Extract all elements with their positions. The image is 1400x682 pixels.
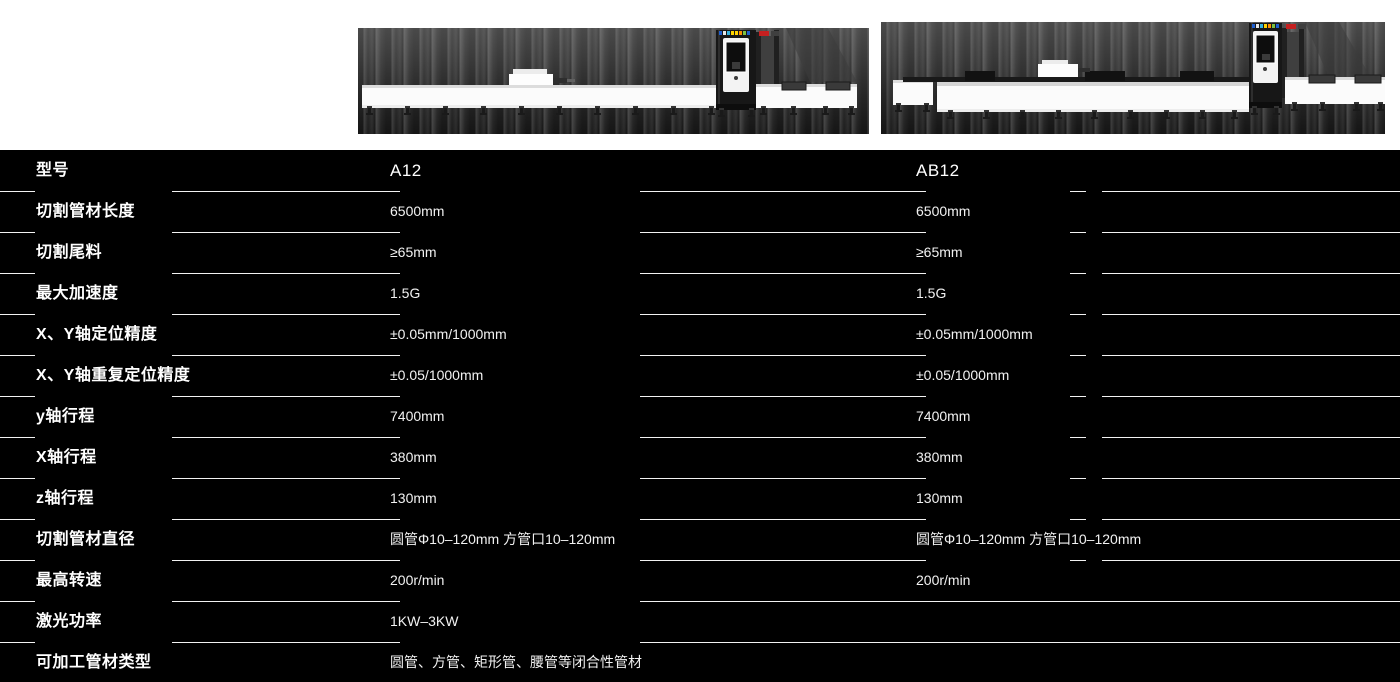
row-divider: [1102, 232, 1400, 233]
row-divider: [0, 232, 35, 233]
spec-row-label: 最大加速度: [36, 273, 119, 314]
chuck-carriage: [1038, 60, 1090, 77]
spec-row-label: 切割尾料: [36, 232, 102, 273]
row-divider: [172, 642, 400, 643]
row-divider: [1070, 314, 1086, 315]
spec-value-ab12: 7400mm: [916, 396, 970, 437]
row-divider: [1102, 273, 1400, 274]
spec-value-a12: 200r/min: [390, 560, 444, 601]
machine-bed: [937, 82, 1249, 112]
unloading-bed: [1285, 75, 1385, 104]
row-divider: [172, 314, 400, 315]
row-divider: [0, 642, 35, 643]
row-divider: [172, 560, 400, 561]
row-divider: [1102, 314, 1400, 315]
brand-logo-icon: [759, 31, 769, 36]
control-button-icon: [1263, 67, 1267, 71]
row-divider: [640, 437, 926, 438]
spec-value-ab12: 380mm: [916, 437, 963, 478]
row-divider: [0, 396, 35, 397]
row-divider: [0, 314, 35, 315]
spec-value-a12: 380mm: [390, 437, 437, 478]
machine-illustration-a12: [358, 28, 869, 134]
spec-row-label: 切割管材直径: [36, 519, 135, 560]
photo-background-shape: [1305, 22, 1371, 78]
spec-table: 型号A12AB12切割管材长度6500mm6500mm切割尾料≥65mm≥65m…: [0, 150, 1400, 682]
spec-value-a12: 7400mm: [390, 396, 444, 437]
column-header-a12: A12: [390, 150, 422, 191]
photo-background-shape: [786, 28, 857, 82]
row-divider: [1070, 560, 1086, 561]
row-divider: [172, 273, 400, 274]
row-divider: [640, 560, 926, 561]
spec-value-ab12: 6500mm: [916, 191, 970, 232]
spec-value-ab12: 1.5G: [916, 273, 946, 314]
spec-row-label: 激光功率: [36, 601, 102, 642]
spec-table-row: y轴行程7400mm7400mm: [0, 396, 1400, 437]
row-divider: [172, 601, 400, 602]
spec-value-a12: ≥65mm: [390, 232, 437, 273]
control-cabinet: [716, 30, 756, 110]
spec-value-a12: 130mm: [390, 478, 437, 519]
row-divider: [1102, 560, 1400, 561]
feeding-pedestal: [893, 80, 933, 105]
row-divider: [172, 478, 400, 479]
color-strip-icon: [1252, 24, 1279, 28]
row-divider: [640, 519, 926, 520]
row-divider: [1102, 519, 1400, 520]
spec-row-label: 可加工管材类型: [36, 642, 152, 682]
row-divider: [172, 437, 400, 438]
row-divider: [0, 519, 35, 520]
spec-value-ab12: 130mm: [916, 478, 963, 519]
row-divider: [1070, 273, 1086, 274]
column-header-ab12: AB12: [916, 150, 960, 191]
row-divider: [640, 232, 926, 233]
machine-illustration-ab12: [881, 22, 1385, 134]
spec-table-row: X、Y轴重复定位精度±0.05/1000mm±0.05/1000mm: [0, 355, 1400, 396]
row-divider: [1102, 355, 1400, 356]
spec-value-a12: ±0.05mm/1000mm: [390, 314, 507, 355]
row-divider: [1070, 396, 1086, 397]
row-divider: [640, 396, 926, 397]
row-divider: [640, 642, 1400, 643]
spec-table-row: 切割管材直径圆管Φ10–120mm 方管口10–120mm圆管Φ10–120mm…: [0, 519, 1400, 560]
product-image-ab12: [881, 22, 1385, 134]
spec-table-row: 可加工管材类型圆管、方管、矩形管、腰管等闭合性管材: [0, 642, 1400, 682]
spec-row-label: X轴行程: [36, 437, 97, 478]
row-divider: [640, 191, 926, 192]
row-divider: [0, 560, 35, 561]
spec-row-label: X、Y轴重复定位精度: [36, 355, 190, 396]
row-divider: [1102, 478, 1400, 479]
row-divider: [0, 478, 35, 479]
spec-header-label: 型号: [36, 150, 69, 191]
spec-table-row: 激光功率1KW–3KW: [0, 601, 1400, 642]
spec-value-a12: 1.5G: [390, 273, 420, 314]
spec-table-row: z轴行程130mm130mm: [0, 478, 1400, 519]
row-divider: [1070, 232, 1086, 233]
machine-bed: [362, 85, 728, 108]
spec-value-a12: 6500mm: [390, 191, 444, 232]
row-divider: [1070, 355, 1086, 356]
row-divider: [640, 314, 926, 315]
spec-row-label: z轴行程: [36, 478, 94, 519]
row-divider: [1070, 437, 1086, 438]
row-divider: [640, 601, 1400, 602]
spec-value-ab12: 圆管Φ10–120mm 方管口10–120mm: [916, 519, 1141, 560]
product-images-section: [0, 0, 1400, 150]
spec-row-label: 切割管材长度: [36, 191, 135, 232]
row-divider: [172, 355, 400, 356]
spec-row-label: X、Y轴定位精度: [36, 314, 157, 355]
spec-row-label: 最高转速: [36, 560, 102, 601]
spec-page: 型号A12AB12切割管材长度6500mm6500mm切割尾料≥65mm≥65m…: [0, 0, 1400, 682]
row-divider: [172, 396, 400, 397]
spec-value-ab12: ±0.05/1000mm: [916, 355, 1009, 396]
row-divider: [1102, 191, 1400, 192]
row-divider: [172, 232, 400, 233]
row-divider: [0, 273, 35, 274]
control-cabinet: [1249, 23, 1282, 108]
control-button-icon: [734, 76, 738, 80]
row-divider: [640, 478, 926, 479]
spec-row-label: y轴行程: [36, 396, 95, 437]
brand-logo-icon: [1286, 24, 1296, 29]
spec-table-row: 切割尾料≥65mm≥65mm: [0, 232, 1400, 273]
spec-table-row: X、Y轴定位精度±0.05mm/1000mm±0.05mm/1000mm: [0, 314, 1400, 355]
spec-value-ab12: ±0.05mm/1000mm: [916, 314, 1033, 355]
spec-value-a12: 圆管、方管、矩形管、腰管等闭合性管材: [390, 642, 642, 682]
spec-value-a12: 圆管Φ10–120mm 方管口10–120mm: [390, 519, 615, 560]
row-divider: [0, 355, 35, 356]
product-image-a12: [358, 28, 869, 134]
row-divider: [172, 191, 400, 192]
row-divider: [1102, 437, 1400, 438]
row-divider: [0, 437, 35, 438]
unloading-bed: [756, 82, 857, 108]
row-divider: [0, 601, 35, 602]
row-divider: [172, 519, 400, 520]
spec-table-row: 最大加速度1.5G1.5G: [0, 273, 1400, 314]
row-divider: [0, 191, 35, 192]
row-divider: [1070, 191, 1086, 192]
spec-value-a12: ±0.05/1000mm: [390, 355, 483, 396]
spec-table-header-row: 型号A12AB12: [0, 150, 1400, 191]
spec-value-ab12: 200r/min: [916, 560, 970, 601]
row-divider: [640, 273, 926, 274]
spec-value-a12: 1KW–3KW: [390, 601, 458, 642]
spec-table-row: 最高转速200r/min200r/min: [0, 560, 1400, 601]
spec-table-row: X轴行程380mm380mm: [0, 437, 1400, 478]
spec-value-ab12: ≥65mm: [916, 232, 963, 273]
spec-table-row: 切割管材长度6500mm6500mm: [0, 191, 1400, 232]
row-divider: [1102, 396, 1400, 397]
row-divider: [640, 355, 926, 356]
row-divider: [1070, 478, 1086, 479]
